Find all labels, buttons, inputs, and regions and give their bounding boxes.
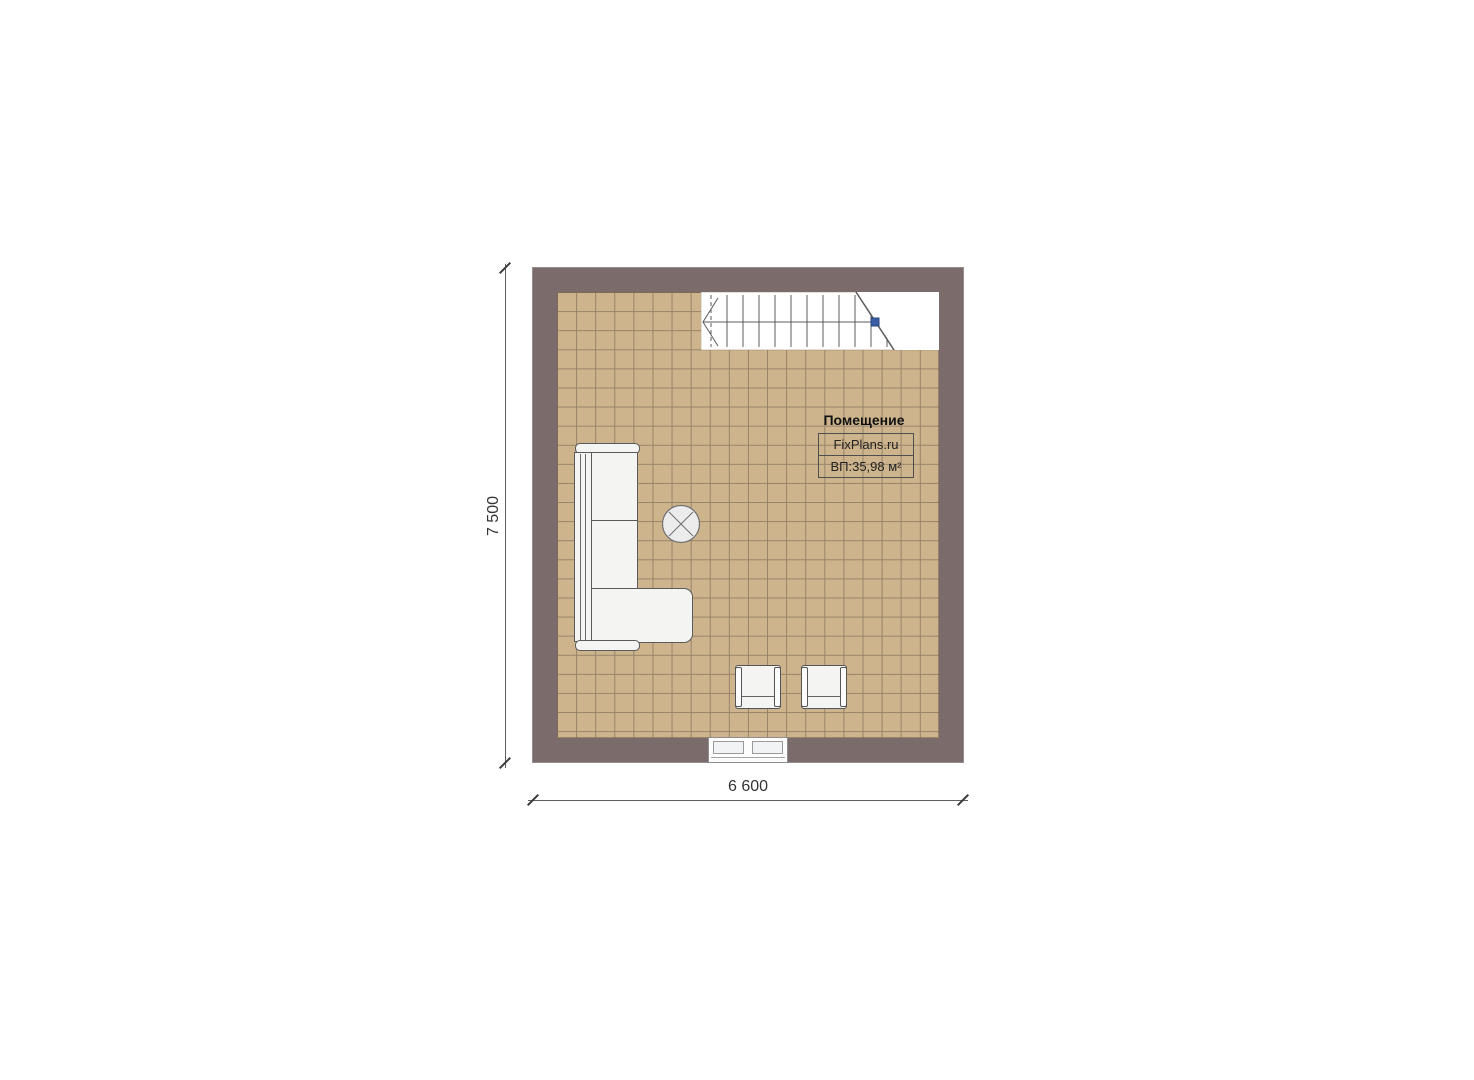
sofa-backrest-line: [585, 454, 586, 640]
room-area-label: ВП:35,98 м²: [818, 455, 914, 478]
armchair-armrest-right: [840, 667, 847, 707]
armchair-armrest-left: [801, 667, 808, 707]
stair-marker-handle: [871, 318, 879, 326]
window-pane-right: [752, 741, 783, 754]
dimension-label-width: 6 600: [688, 778, 808, 796]
sofa-seat-cushion: [591, 452, 638, 521]
brand-label-box: FixPlans.ru: [818, 433, 914, 456]
dimension-line-vertical: [505, 264, 506, 768]
sofa-backrest-line: [580, 454, 581, 640]
floor-plan-page: { "plan": { "room_title": "Помещение", "…: [0, 0, 1474, 1080]
round-coffee-table: [661, 504, 701, 544]
sofa-backrest: [574, 452, 592, 642]
corner-sofa: [574, 443, 694, 651]
window: [708, 737, 788, 763]
dimension-label-height: 7 500: [485, 456, 503, 576]
armchair-seat-line: [742, 696, 774, 697]
armchair-armrest-right: [774, 667, 781, 707]
sofa-armrest-bottom: [575, 640, 640, 651]
window-sill-line: [711, 757, 785, 758]
armchair: [735, 665, 781, 709]
armchair-seat-line: [808, 696, 840, 697]
window-pane-left: [713, 741, 744, 754]
armchair: [801, 665, 847, 709]
sofa-chaise-section: [591, 588, 693, 643]
sofa-seat-cushion: [591, 520, 638, 589]
room-title: Помещение: [806, 411, 922, 429]
armchair-armrest-left: [735, 667, 742, 707]
round-table-drawing: [661, 504, 701, 544]
staircase: [701, 292, 939, 350]
dimension-line-horizontal: [528, 800, 968, 801]
staircase-drawing: [701, 292, 939, 350]
